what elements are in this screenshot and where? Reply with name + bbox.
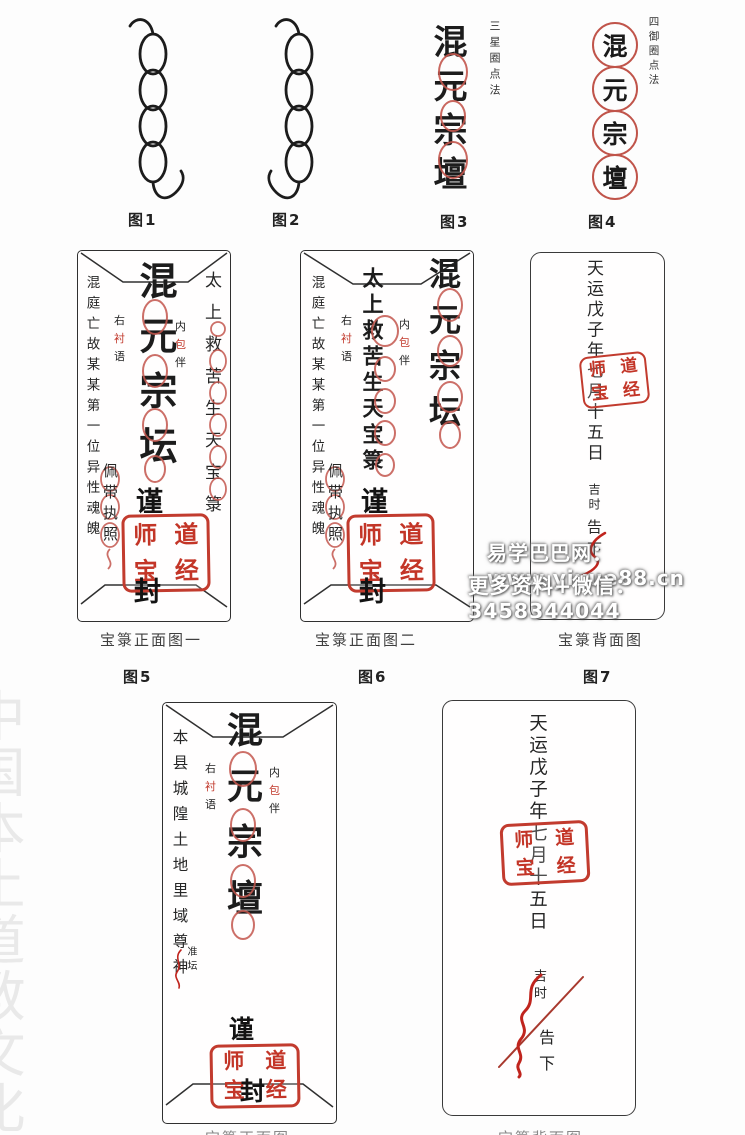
- figure3-annotation: 三星圈点法: [489, 20, 500, 100]
- note-char: 包: [269, 785, 280, 796]
- side-note-inner: 内 包 伴: [399, 319, 410, 366]
- red-loop-chain: [357, 265, 405, 495]
- sealed-char: 封: [359, 579, 386, 606]
- figure2-label: 图2: [272, 209, 301, 230]
- figure4-circled-char: 壇: [592, 154, 638, 200]
- seal-char-bl: 宝: [515, 858, 535, 878]
- seal-char-tr: 道: [174, 522, 198, 546]
- figure6-label: 图6: [358, 666, 387, 687]
- seal-char-br: 经: [175, 558, 199, 582]
- sealed-char: 封: [134, 579, 161, 606]
- seal-char-br: 经: [266, 1079, 287, 1100]
- seal-char-tr: 道: [620, 357, 639, 376]
- red-loop-chain: [194, 265, 234, 545]
- figure4-char-2: 元: [602, 71, 627, 107]
- seal-char-bl: 宝: [591, 384, 610, 403]
- seal-char-tr: 道: [555, 828, 575, 848]
- sealed-char: 封: [240, 1079, 265, 1104]
- note-char: 右: [341, 315, 352, 326]
- seal-char-tl: 师: [133, 523, 157, 547]
- figure5-label: 图5: [123, 666, 152, 687]
- seal-char-tl: 师: [514, 830, 534, 850]
- figure8-caption-partial: 宝箓正面图: [205, 1127, 300, 1135]
- wear-permit-column: 佩带执照: [102, 463, 117, 547]
- side-watermark-text: 中国本土道教文化: [0, 688, 20, 1135]
- respectfully-char: 谨: [136, 489, 163, 516]
- seal-char-br: 经: [556, 856, 576, 876]
- note-char: 包: [175, 339, 186, 350]
- note-char: 伴: [269, 803, 280, 814]
- seal-char-tl: 师: [588, 360, 607, 379]
- dao-jing-shi-bao-seal: 师 道 宝 经: [578, 351, 650, 410]
- figure4-char-3: 宗: [602, 115, 627, 151]
- figure4-circled-char: 混: [592, 22, 638, 68]
- figure3-red-loops: [424, 20, 484, 206]
- note-char: 衬: [341, 333, 352, 344]
- figure7-label: 图7: [583, 666, 612, 687]
- red-loop-chain: [128, 259, 182, 499]
- seal-char-br: 经: [400, 558, 424, 582]
- figure5-caption: 宝箓正面图一: [100, 629, 202, 650]
- note-char: 语: [114, 351, 125, 362]
- note-char: 包: [399, 337, 410, 348]
- figure3-label: 图3: [440, 211, 469, 232]
- note-char: 内: [399, 319, 410, 330]
- note-char: 衬: [114, 333, 125, 344]
- talisman-envelope-front-3: 本县城隍土地里域尊神 准坛 右 衬 语 混元宗壇 内 包 伴 谨 师 道: [162, 702, 337, 1124]
- seal-char-tl: 师: [358, 523, 382, 547]
- note-char: 右: [114, 315, 125, 326]
- seal-char-tr: 道: [265, 1050, 286, 1071]
- talisman-envelope-front-2: 混庭亡故某某第一位异性魂魄 右 衬 语 太上救苦生天宝箓 内 包 伴 混元宗坛: [300, 250, 474, 622]
- figure4-char-1: 混: [602, 27, 627, 63]
- auspicious-time-text: 吉时: [588, 483, 600, 513]
- side-note-right: 右 衬 语: [341, 315, 352, 362]
- contact-watermark-line: 更多资料+微信：3458344044: [468, 569, 745, 623]
- seal-char-br: 经: [622, 381, 641, 400]
- note-char: 内: [269, 767, 280, 778]
- figure6-caption: 宝箓正面图二: [315, 629, 417, 650]
- dao-jing-shi-bao-seal: 师 道 宝 经: [499, 820, 590, 887]
- talisman-envelope-back-2: 天运戊子年七月十五日 师 道 宝 经 吉时 告下: [442, 700, 636, 1116]
- wear-permit-column: 佩带执照: [327, 463, 342, 547]
- figure7-caption: 宝箓背面图: [558, 629, 643, 650]
- seal-char-tl: 师: [223, 1051, 244, 1072]
- figure1-label: 图1: [128, 209, 157, 230]
- figure4-circled-char: 元: [592, 66, 638, 112]
- talisman-envelope-front-1: 混庭亡故某某第一位异性魂魄 右 衬 语 混元宗坛 内 包 伴 太上救苦生天宝箓: [77, 250, 231, 622]
- red-flourish-small: [171, 948, 187, 990]
- red-flourish-signature: [493, 949, 589, 1079]
- knot-diagram-figure1: [108, 14, 198, 206]
- note-char: 伴: [399, 355, 410, 366]
- figure9-caption-partial: 宝箓背面图: [498, 1127, 593, 1135]
- side-note-inner: 内 包 伴: [175, 321, 186, 368]
- figure4-char-4: 壇: [602, 159, 627, 195]
- side-note-right: 右 衬 语: [114, 315, 125, 362]
- note-char: 伴: [175, 357, 186, 368]
- note-char: 内: [175, 321, 186, 332]
- figure4-label: 图4: [588, 211, 617, 232]
- knot-diagram-figure2: [252, 14, 342, 206]
- scanned-document-page: 中国本土道教文化 混元宗壇 三星圈点法 混: [0, 0, 745, 1135]
- seal-char-tr: 道: [399, 522, 423, 546]
- respectfully-char: 谨: [361, 489, 388, 516]
- side-note-inner: 内 包 伴: [269, 767, 280, 814]
- note-char: 语: [341, 351, 352, 362]
- figure4-circled-char: 宗: [592, 110, 638, 156]
- red-loop-chain: [423, 253, 477, 463]
- respectfully-char: 谨: [229, 1017, 254, 1042]
- figure4-annotation: 四御圈点法: [648, 16, 659, 89]
- red-loop-chain: [215, 707, 271, 957]
